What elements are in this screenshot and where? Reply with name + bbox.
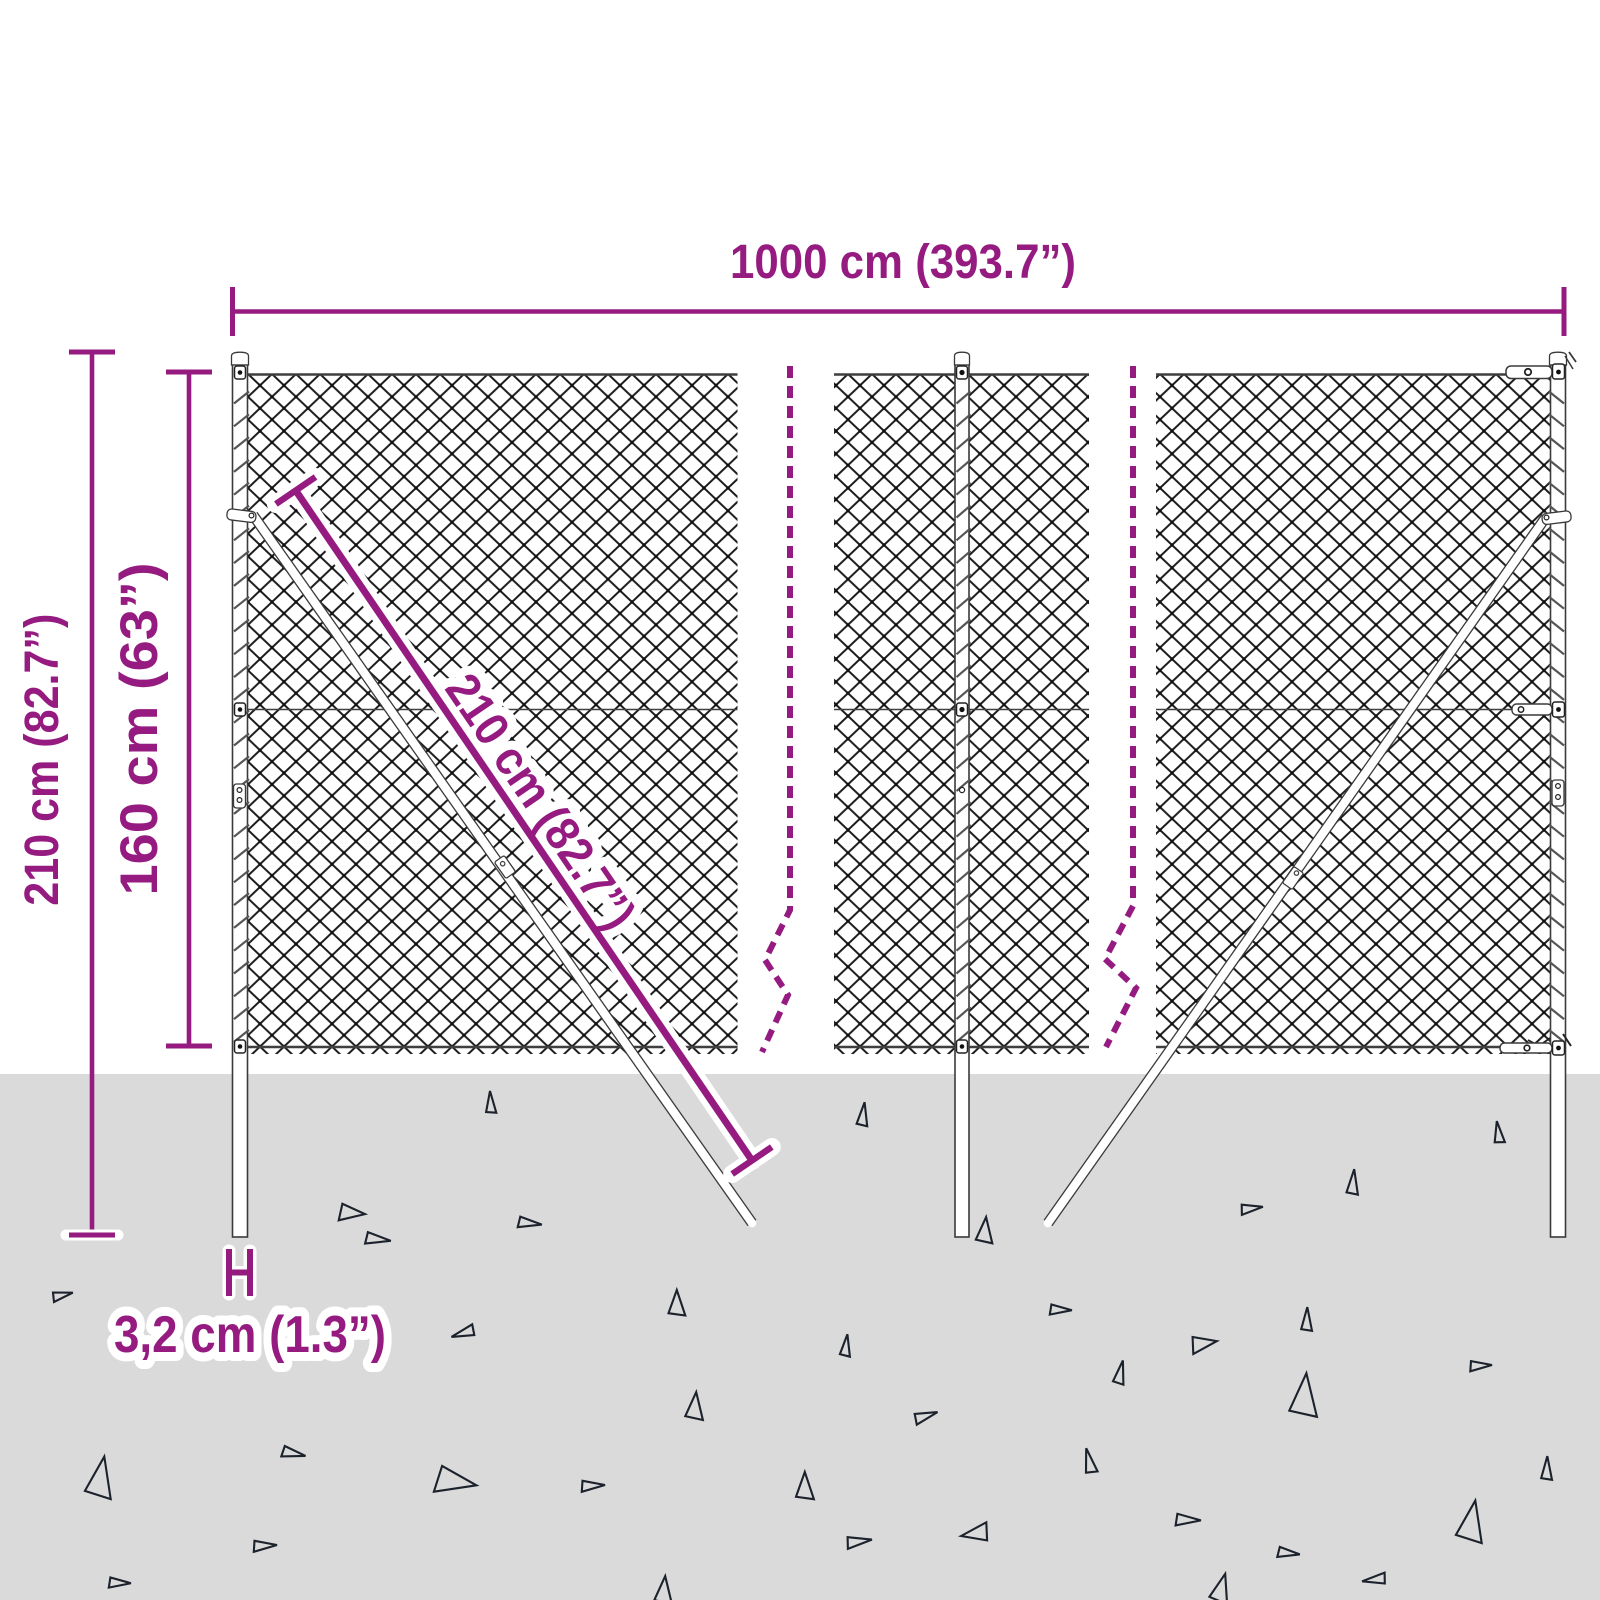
- svg-text:160 cm (63”): 160 cm (63”): [110, 563, 169, 896]
- svg-text:1000 cm (393.7”): 1000 cm (393.7”): [730, 236, 1076, 289]
- svg-text:3,2 cm (1.3”): 3,2 cm (1.3”): [114, 1306, 386, 1364]
- svg-text:210 cm (82.7”): 210 cm (82.7”): [16, 614, 69, 906]
